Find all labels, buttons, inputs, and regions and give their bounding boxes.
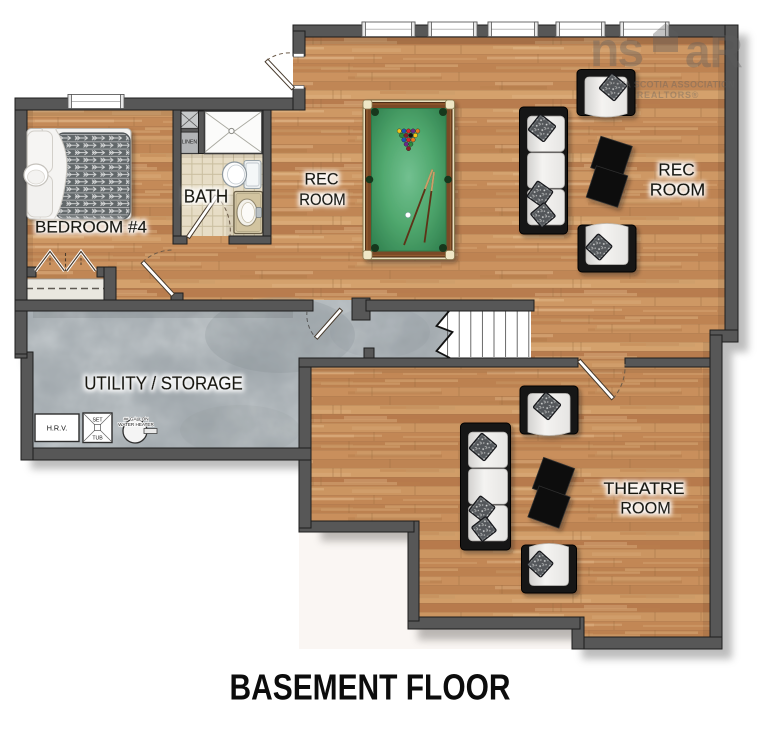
svg-text:H.R.V.: H.R.V. <box>47 424 68 433</box>
svg-text:REC: REC <box>658 160 695 180</box>
svg-text:REALTORS®: REALTORS® <box>637 90 700 100</box>
svg-text:TUB: TUB <box>92 436 103 442</box>
svg-text:BATH: BATH <box>184 187 229 207</box>
svg-text:SET: SET <box>92 418 103 424</box>
svg-text:LINEN: LINEN <box>182 140 198 146</box>
svg-text:## GALLON: ## GALLON <box>123 417 148 422</box>
svg-text:THEATRE: THEATRE <box>604 479 685 498</box>
svg-text:ROOM: ROOM <box>299 191 346 209</box>
svg-text:REC: REC <box>305 171 339 189</box>
svg-text:ROOM: ROOM <box>650 180 706 200</box>
svg-text:NOVA SCOTIA ASSOCIATION: NOVA SCOTIA ASSOCIATION <box>605 80 735 90</box>
svg-text:BEDROOM #4: BEDROOM #4 <box>35 218 147 237</box>
svg-text:ROOM: ROOM <box>620 499 671 518</box>
svg-text:aR: aR <box>685 25 743 77</box>
svg-text:UTILITY / STORAGE: UTILITY / STORAGE <box>84 374 243 394</box>
svg-text:BASEMENT FLOOR: BASEMENT FLOOR <box>230 667 511 708</box>
svg-text:ns: ns <box>590 24 642 77</box>
svg-text:WATER HEATER: WATER HEATER <box>118 422 154 427</box>
